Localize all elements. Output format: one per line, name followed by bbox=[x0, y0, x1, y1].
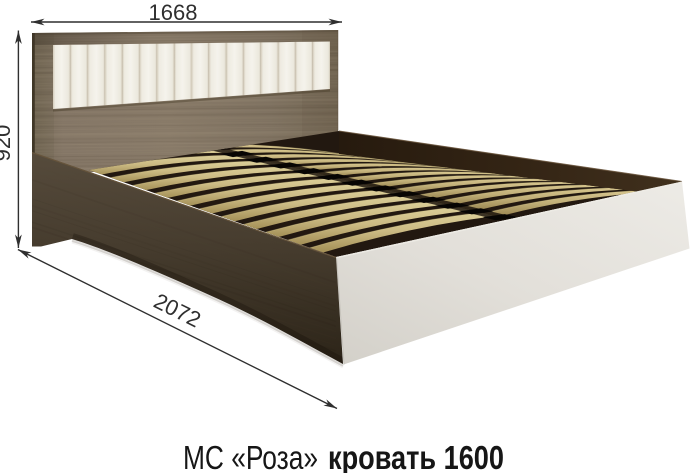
svg-text:кровать 1600: кровать 1600 bbox=[328, 439, 504, 473]
svg-text:МС «Роза»: МС «Роза» bbox=[183, 439, 318, 473]
svg-text:1668: 1668 bbox=[149, 0, 198, 25]
svg-text:920: 920 bbox=[0, 125, 15, 162]
